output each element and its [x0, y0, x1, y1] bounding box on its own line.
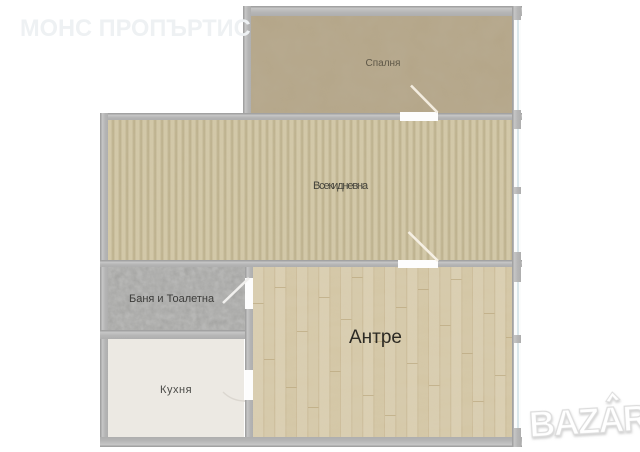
- svg-text:BAZAR: BAZAR: [528, 397, 640, 445]
